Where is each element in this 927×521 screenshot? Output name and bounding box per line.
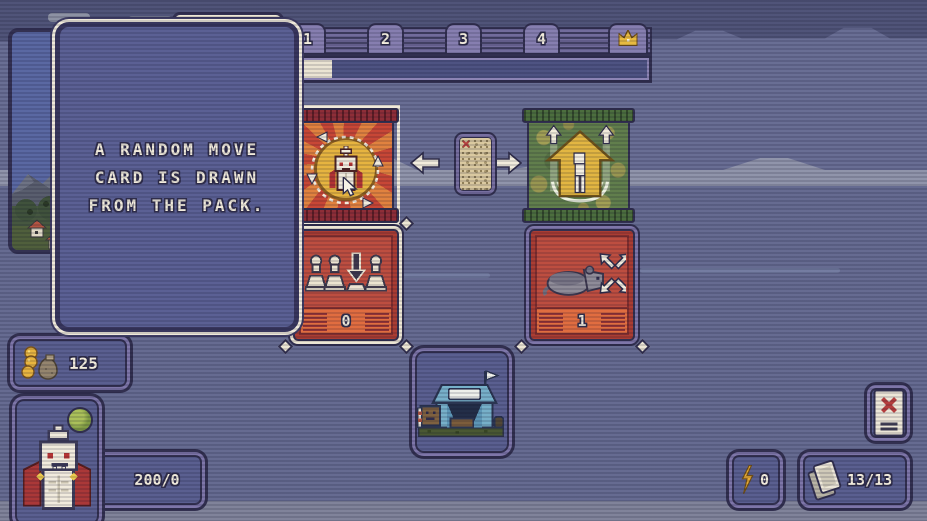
upgrade-card-pack[interactable] xyxy=(524,108,633,223)
arrow-left-icon xyxy=(410,151,440,175)
move-card-pack[interactable] xyxy=(288,108,397,223)
card-count: 0 xyxy=(341,312,350,330)
coins-value: 125 xyxy=(69,354,98,373)
cycle-arrows-icon xyxy=(299,124,391,214)
round-tab-label: 3 xyxy=(459,30,468,48)
tooltip-line: FROM THE PACK. xyxy=(89,196,266,215)
rat-expand-arrows-icon xyxy=(538,247,626,297)
game-screen: A RANDOM MOVE CARD IS DRAWN FROM THE PAC… xyxy=(0,0,927,521)
energy-panel: 0 xyxy=(729,452,783,508)
pack-crimp-bottom xyxy=(522,208,635,223)
house-up-arrow-icon xyxy=(535,122,625,208)
discard-button[interactable] xyxy=(867,385,910,441)
pack-crimp-top xyxy=(286,108,399,123)
round-tab-label: 1 xyxy=(303,30,312,48)
tooltip-line: A RANDOM MOVE xyxy=(95,140,259,159)
character-portrait xyxy=(12,396,102,521)
card-art xyxy=(535,235,629,309)
green-orb-icon xyxy=(67,407,93,433)
map-x-mark xyxy=(461,139,473,151)
move-card-pawns[interactable]: 0 xyxy=(290,226,402,344)
round-tab-label: 2 xyxy=(381,30,390,48)
health-panel: 200/0 xyxy=(95,452,205,508)
cloud-icon xyxy=(48,13,90,22)
crown-icon xyxy=(617,30,639,48)
card-text-line xyxy=(880,428,897,431)
card-art xyxy=(299,235,393,309)
pack-crimp-bottom xyxy=(286,208,399,223)
mouse-cursor xyxy=(342,177,358,197)
tooltip-card: A RANDOM MOVE CARD IS DRAWN FROM THE PAC… xyxy=(55,22,299,332)
move-pack-art xyxy=(291,117,394,214)
tooltip-line: CARD IS DRAWN xyxy=(95,168,259,187)
coins-bag-icon xyxy=(21,344,61,382)
card-footer: 1 xyxy=(535,307,629,335)
bg-cloud-wisp xyxy=(640,268,840,273)
arrow-right-icon xyxy=(492,151,522,175)
health-value: 200/0 xyxy=(120,471,179,489)
coins-panel: 125 xyxy=(10,336,130,390)
footer-stripes xyxy=(539,311,563,331)
tent-icon xyxy=(417,359,505,443)
footer-stripes xyxy=(303,311,327,331)
round-tab-boss xyxy=(608,23,648,53)
round-tab-2: 2 xyxy=(367,23,404,53)
deck-count: 13/13 xyxy=(847,471,892,489)
deck-panel[interactable]: 13/13 xyxy=(800,452,910,508)
round-progress-bar xyxy=(284,55,652,83)
card-count-banner: 0 xyxy=(329,309,363,333)
round-tab-3: 3 xyxy=(445,23,482,53)
round-tab-4: 4 xyxy=(523,23,560,53)
pack-crimp-top xyxy=(522,108,635,123)
card-text-line xyxy=(880,423,897,426)
card-footer: 0 xyxy=(299,307,393,335)
energy-value: 0 xyxy=(760,471,769,489)
camp-button[interactable] xyxy=(412,348,512,456)
pawns-down-arrow-icon xyxy=(303,249,389,295)
card-count-banner: 1 xyxy=(565,309,599,333)
card-count: 1 xyxy=(577,312,586,330)
footer-stripes xyxy=(601,311,625,331)
lightning-icon xyxy=(739,465,755,495)
footer-stripes xyxy=(365,311,389,331)
upgrade-pack-art xyxy=(527,117,630,214)
round-tab-label: 4 xyxy=(537,30,546,48)
red-x-icon xyxy=(879,396,898,415)
card-stack-icon xyxy=(805,458,845,502)
move-card-rat[interactable]: 1 xyxy=(526,226,638,344)
discard-card-icon xyxy=(873,390,904,437)
map-card xyxy=(456,134,495,194)
